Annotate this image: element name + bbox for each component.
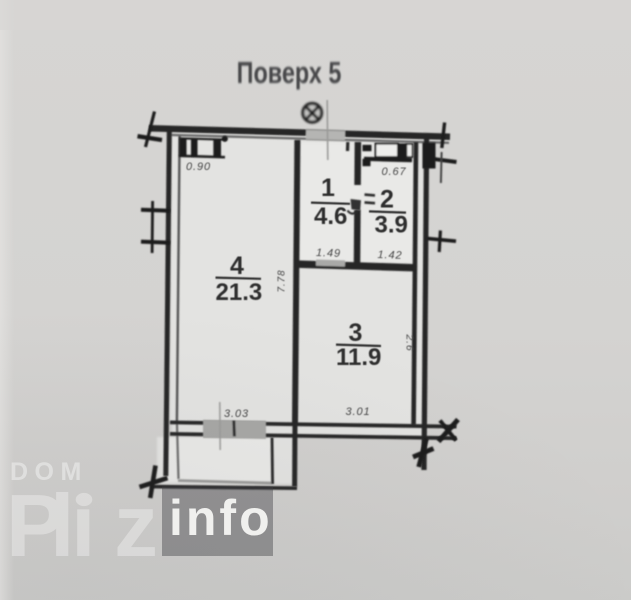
svg-text:Plız: Plız [6, 476, 158, 575]
svg-text:0.90: 0.90 [186, 161, 211, 173]
svg-text:DOM: DOM [10, 458, 88, 486]
svg-text:3.9: 3.9 [375, 212, 408, 239]
svg-text:1: 1 [321, 174, 335, 202]
svg-text:info: info [169, 490, 273, 546]
svg-text:1.42: 1.42 [377, 249, 402, 262]
svg-text:Поверх 5: Поверх 5 [237, 55, 342, 90]
svg-text:1.49: 1.49 [316, 247, 341, 260]
svg-text:4: 4 [230, 252, 244, 280]
svg-text:2: 2 [380, 186, 394, 214]
svg-text:7.78: 7.78 [277, 269, 288, 292]
svg-text:4.6: 4.6 [314, 203, 347, 230]
svg-text:0.67: 0.67 [382, 166, 407, 178]
